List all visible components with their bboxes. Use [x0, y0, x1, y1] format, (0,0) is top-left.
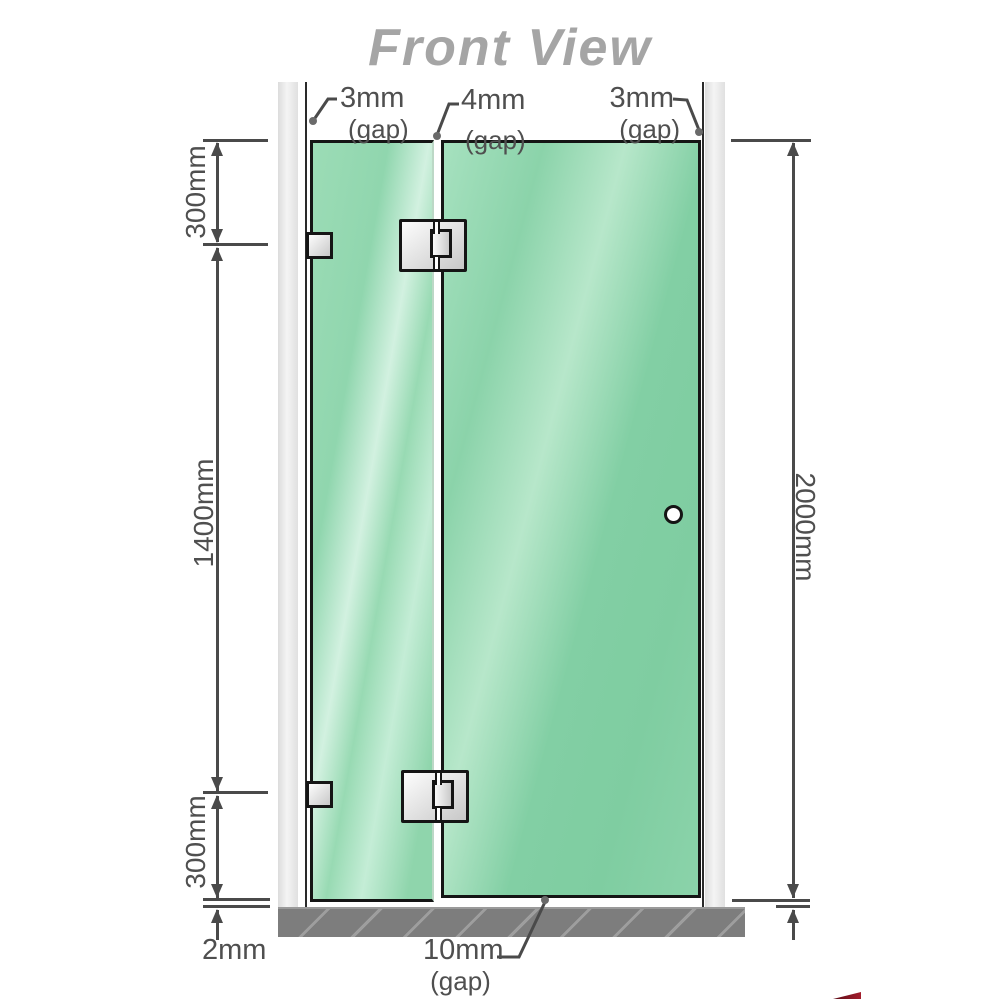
gap-label-top-left: 3mm (gap)	[340, 84, 409, 142]
gap-label-top-middle: 4mm (gap)	[461, 86, 526, 153]
front-view-diagram: Front View	[0, 0, 1000, 1000]
dim-label-right-total: 2000mm	[790, 467, 820, 587]
gap-label-top-right: 3mm (gap)	[608, 84, 674, 142]
dim-label-upper-left: 300mm	[181, 132, 211, 252]
leader-dot	[695, 128, 703, 136]
gap-suffix: (gap)	[423, 968, 498, 994]
gap-suffix: (gap)	[348, 116, 409, 142]
dim-label-lower-left: 300mm	[181, 782, 211, 902]
dim-label-floor-gap: 2mm	[202, 936, 266, 965]
gap-value: 3mm	[608, 84, 674, 113]
gap-value: 3mm	[340, 84, 409, 113]
leader-gap-top-left	[313, 99, 337, 121]
gap-value: 10mm	[423, 936, 498, 965]
leader-dot	[433, 132, 441, 140]
leader-gap-top-middle	[437, 104, 459, 135]
gap-value: 4mm	[461, 86, 526, 115]
leader-dot	[541, 896, 549, 904]
leader-gap-bottom	[497, 902, 545, 957]
gap-suffix: (gap)	[608, 116, 680, 142]
gap-suffix: (gap)	[465, 127, 526, 153]
leader-dot	[309, 117, 317, 125]
dim-label-middle-left: 1400mm	[189, 453, 219, 573]
gap-label-bottom: 10mm (gap)	[423, 936, 498, 994]
